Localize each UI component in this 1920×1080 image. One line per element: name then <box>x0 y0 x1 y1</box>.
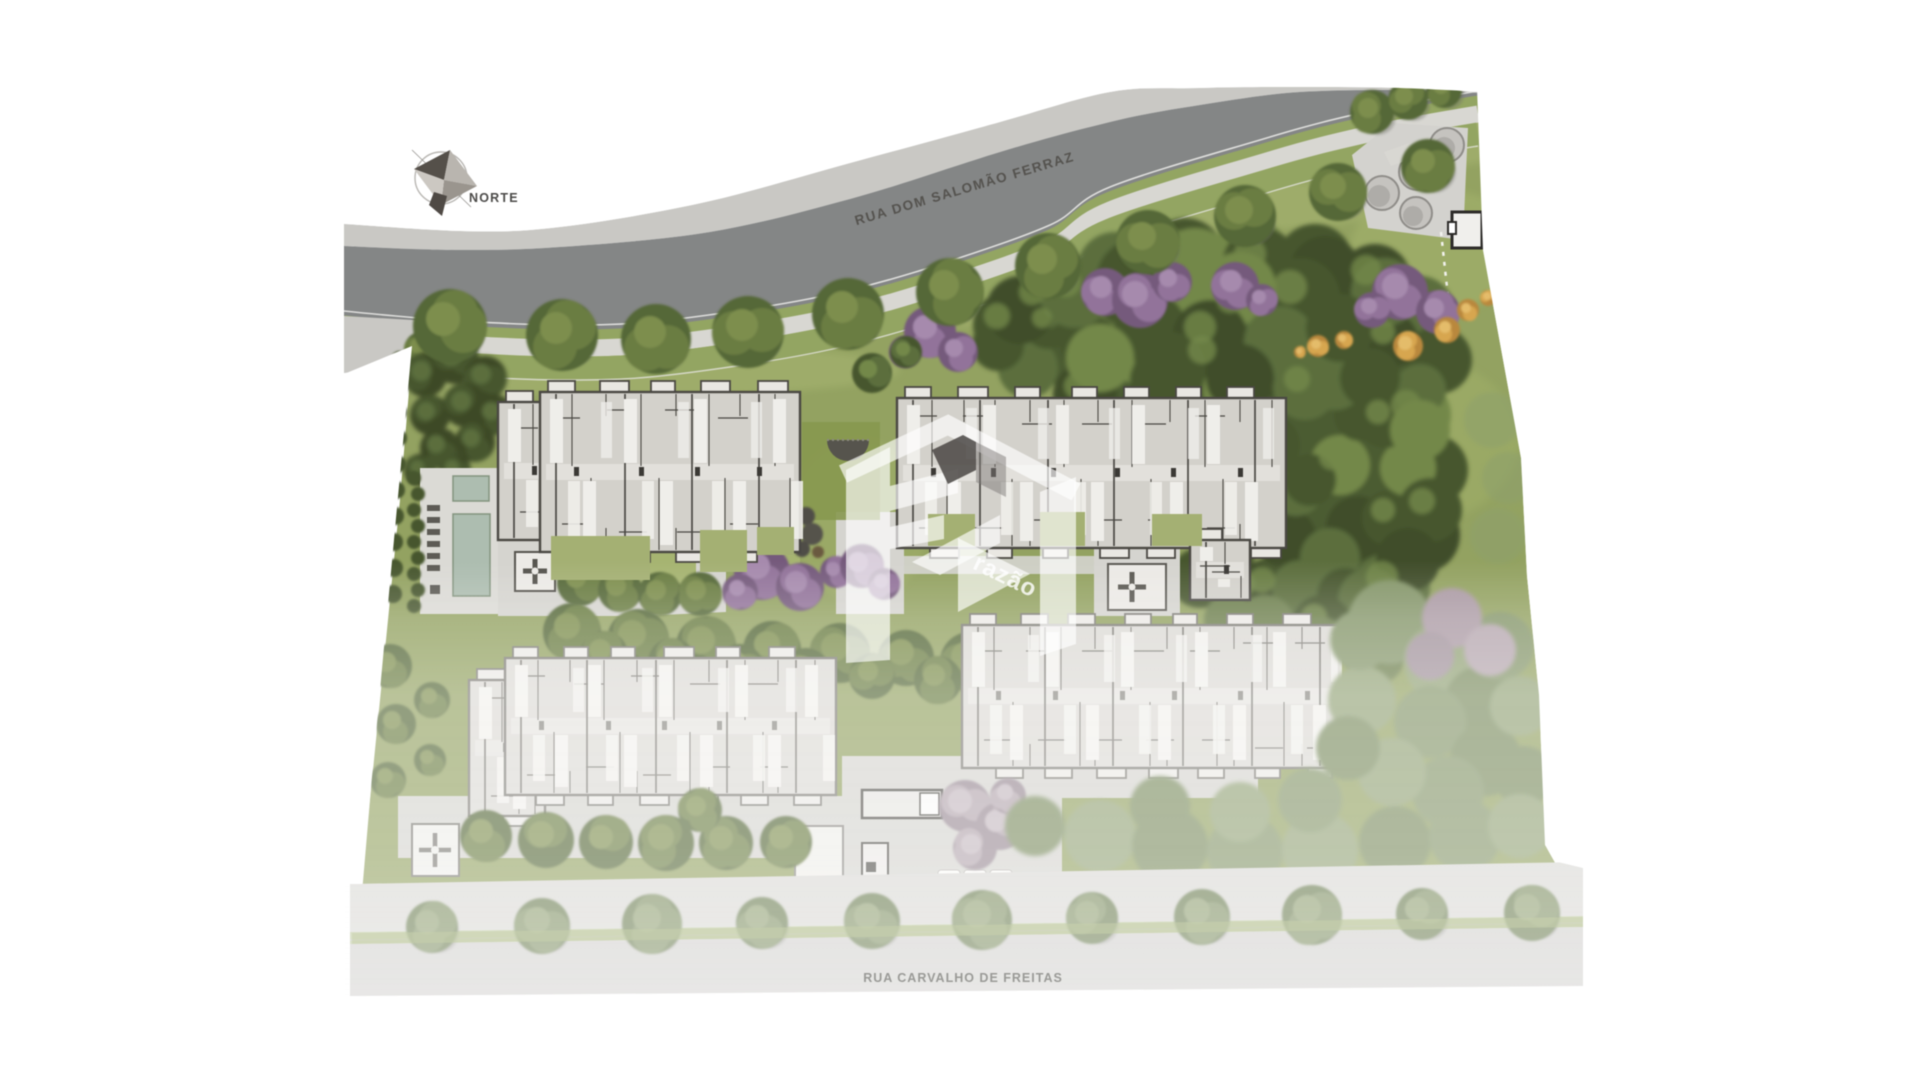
svg-text:NORTE: NORTE <box>469 191 519 205</box>
svg-text:RUA CARVALHO DE FREITAS: RUA CARVALHO DE FREITAS <box>863 971 1063 985</box>
